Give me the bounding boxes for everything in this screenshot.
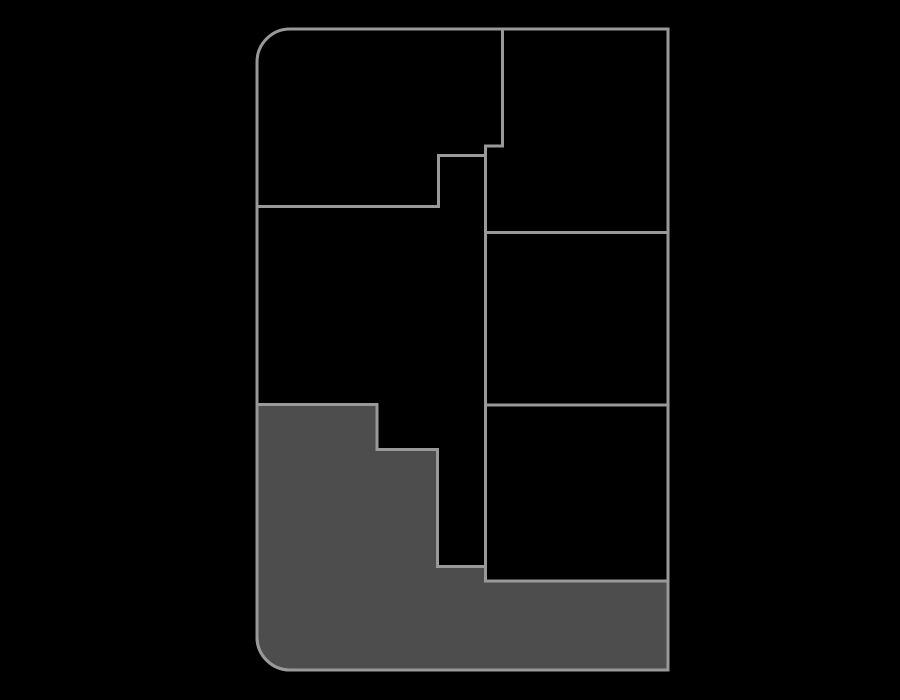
floorplan-canvas xyxy=(0,0,900,700)
floorplan-svg xyxy=(0,0,900,700)
highlighted-region[interactable] xyxy=(257,405,668,671)
wall-vertical-top-divider xyxy=(486,29,503,581)
wall-top-left-room-boundary xyxy=(257,156,486,207)
